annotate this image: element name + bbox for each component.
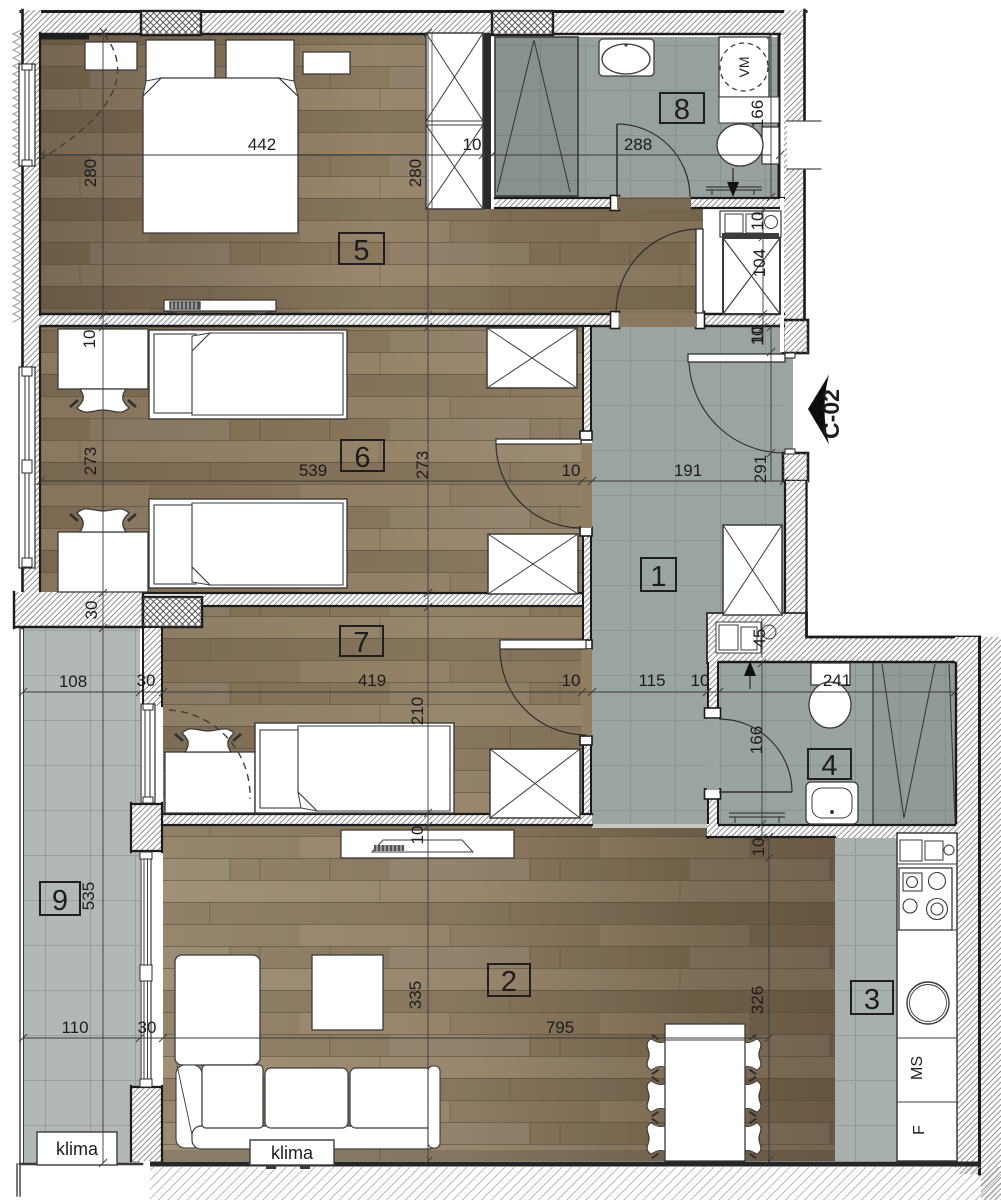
svg-text:6: 6 bbox=[354, 442, 370, 474]
svg-text:104: 104 bbox=[750, 249, 769, 277]
svg-text:F: F bbox=[911, 1125, 928, 1135]
svg-text:8: 8 bbox=[674, 94, 690, 126]
svg-text:2: 2 bbox=[501, 966, 517, 998]
svg-text:419: 419 bbox=[358, 671, 386, 690]
svg-text:191: 191 bbox=[674, 461, 702, 480]
svg-text:10: 10 bbox=[562, 461, 581, 480]
svg-text:442: 442 bbox=[248, 135, 276, 154]
svg-text:535: 535 bbox=[79, 882, 98, 910]
svg-text:10: 10 bbox=[408, 826, 427, 845]
svg-text:291: 291 bbox=[751, 455, 770, 483]
svg-text:3: 3 bbox=[864, 984, 880, 1016]
svg-text:335: 335 bbox=[406, 981, 425, 1009]
svg-text:10: 10 bbox=[748, 325, 767, 344]
svg-text:4: 4 bbox=[821, 750, 837, 782]
svg-text:166: 166 bbox=[747, 726, 766, 754]
svg-text:30: 30 bbox=[137, 671, 156, 690]
svg-text:166: 166 bbox=[748, 100, 767, 128]
svg-text:210: 210 bbox=[408, 697, 427, 725]
svg-text:108: 108 bbox=[59, 672, 87, 691]
svg-text:30: 30 bbox=[82, 601, 101, 620]
svg-text:10: 10 bbox=[80, 330, 99, 349]
svg-text:280: 280 bbox=[406, 159, 425, 187]
svg-text:115: 115 bbox=[638, 671, 665, 690]
svg-text:45: 45 bbox=[750, 629, 769, 648]
svg-text:326: 326 bbox=[748, 986, 767, 1014]
svg-text:VM: VM bbox=[736, 57, 752, 78]
svg-text:klima: klima bbox=[56, 1139, 99, 1159]
svg-text:795: 795 bbox=[546, 1018, 574, 1037]
svg-text:9: 9 bbox=[52, 885, 68, 917]
svg-text:10: 10 bbox=[562, 671, 581, 690]
svg-text:1: 1 bbox=[650, 561, 666, 593]
svg-text:110: 110 bbox=[61, 1018, 88, 1037]
svg-text:273: 273 bbox=[413, 451, 432, 479]
svg-text:539: 539 bbox=[299, 461, 327, 480]
svg-text:241: 241 bbox=[823, 671, 851, 690]
svg-text:10: 10 bbox=[749, 838, 768, 857]
svg-text:5: 5 bbox=[353, 235, 369, 267]
svg-text:MS: MS bbox=[909, 1056, 926, 1080]
svg-text:30: 30 bbox=[138, 1018, 157, 1037]
svg-text:280: 280 bbox=[81, 159, 100, 187]
svg-text:7: 7 bbox=[353, 627, 369, 659]
svg-text:10: 10 bbox=[691, 671, 710, 690]
svg-text:C-02: C-02 bbox=[818, 389, 844, 439]
svg-text:273: 273 bbox=[81, 447, 100, 475]
svg-text:10: 10 bbox=[748, 212, 767, 231]
svg-text:klima: klima bbox=[271, 1143, 314, 1163]
svg-text:10: 10 bbox=[463, 135, 482, 154]
svg-text:288: 288 bbox=[624, 135, 652, 154]
